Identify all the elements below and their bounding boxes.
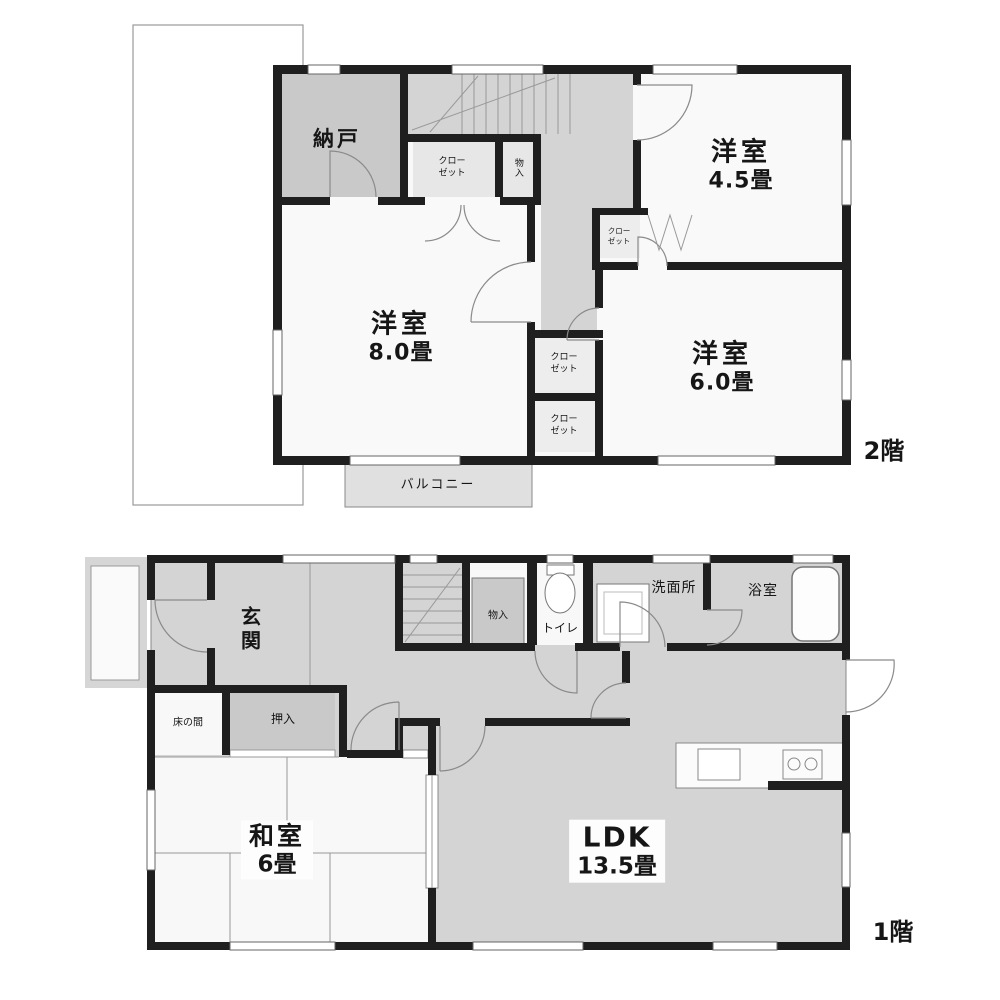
label-closet-a: クローゼット (550, 352, 577, 375)
stair-hall (408, 74, 633, 134)
label-closet-b: クローゼット (550, 414, 577, 437)
label-oshiire: 押入 (271, 713, 295, 727)
label-western-60: 洋室 6.0畳 (690, 340, 755, 395)
label-closet-45: クローゼット (608, 226, 631, 246)
toilet-icon (545, 565, 575, 613)
label-washroom: 洗面所 (652, 580, 697, 596)
floor2-plan (133, 25, 851, 507)
floorplan-drawing (0, 0, 1000, 1000)
floor2-label: 2階 (864, 438, 905, 466)
washstand-icon (597, 584, 649, 642)
label-closet-stairs: クローゼット (438, 156, 465, 179)
label-western-45: 洋室 4.5畳 (709, 138, 774, 193)
label-storage-2f: 物入 (511, 158, 523, 178)
label-tokonoma: 床の間 (173, 717, 203, 729)
label-genkan: 玄関 (238, 606, 261, 654)
label-nando: 納戸 (313, 127, 361, 151)
label-western-80: 洋室 8.0畳 (369, 310, 434, 365)
label-balcony: バルコニー (401, 479, 476, 494)
label-toilet: トイレ (542, 622, 578, 636)
floor1-label: 1階 (873, 919, 914, 947)
label-bathroom: 浴室 (748, 583, 778, 599)
floorplan-page: 納戸 クローゼット 物入 洋室 4.5畳 クローゼット 洋室 8.0畳 洋室 6… (0, 0, 1000, 1000)
label-washitsu: 和室 6畳 (241, 820, 313, 879)
bathtub-icon (792, 567, 839, 641)
sink-icon (698, 749, 740, 780)
hall-corridor (541, 134, 597, 338)
label-storage-1f: 物入 (488, 610, 508, 622)
label-ldk: LDK 13.5畳 (569, 820, 665, 883)
